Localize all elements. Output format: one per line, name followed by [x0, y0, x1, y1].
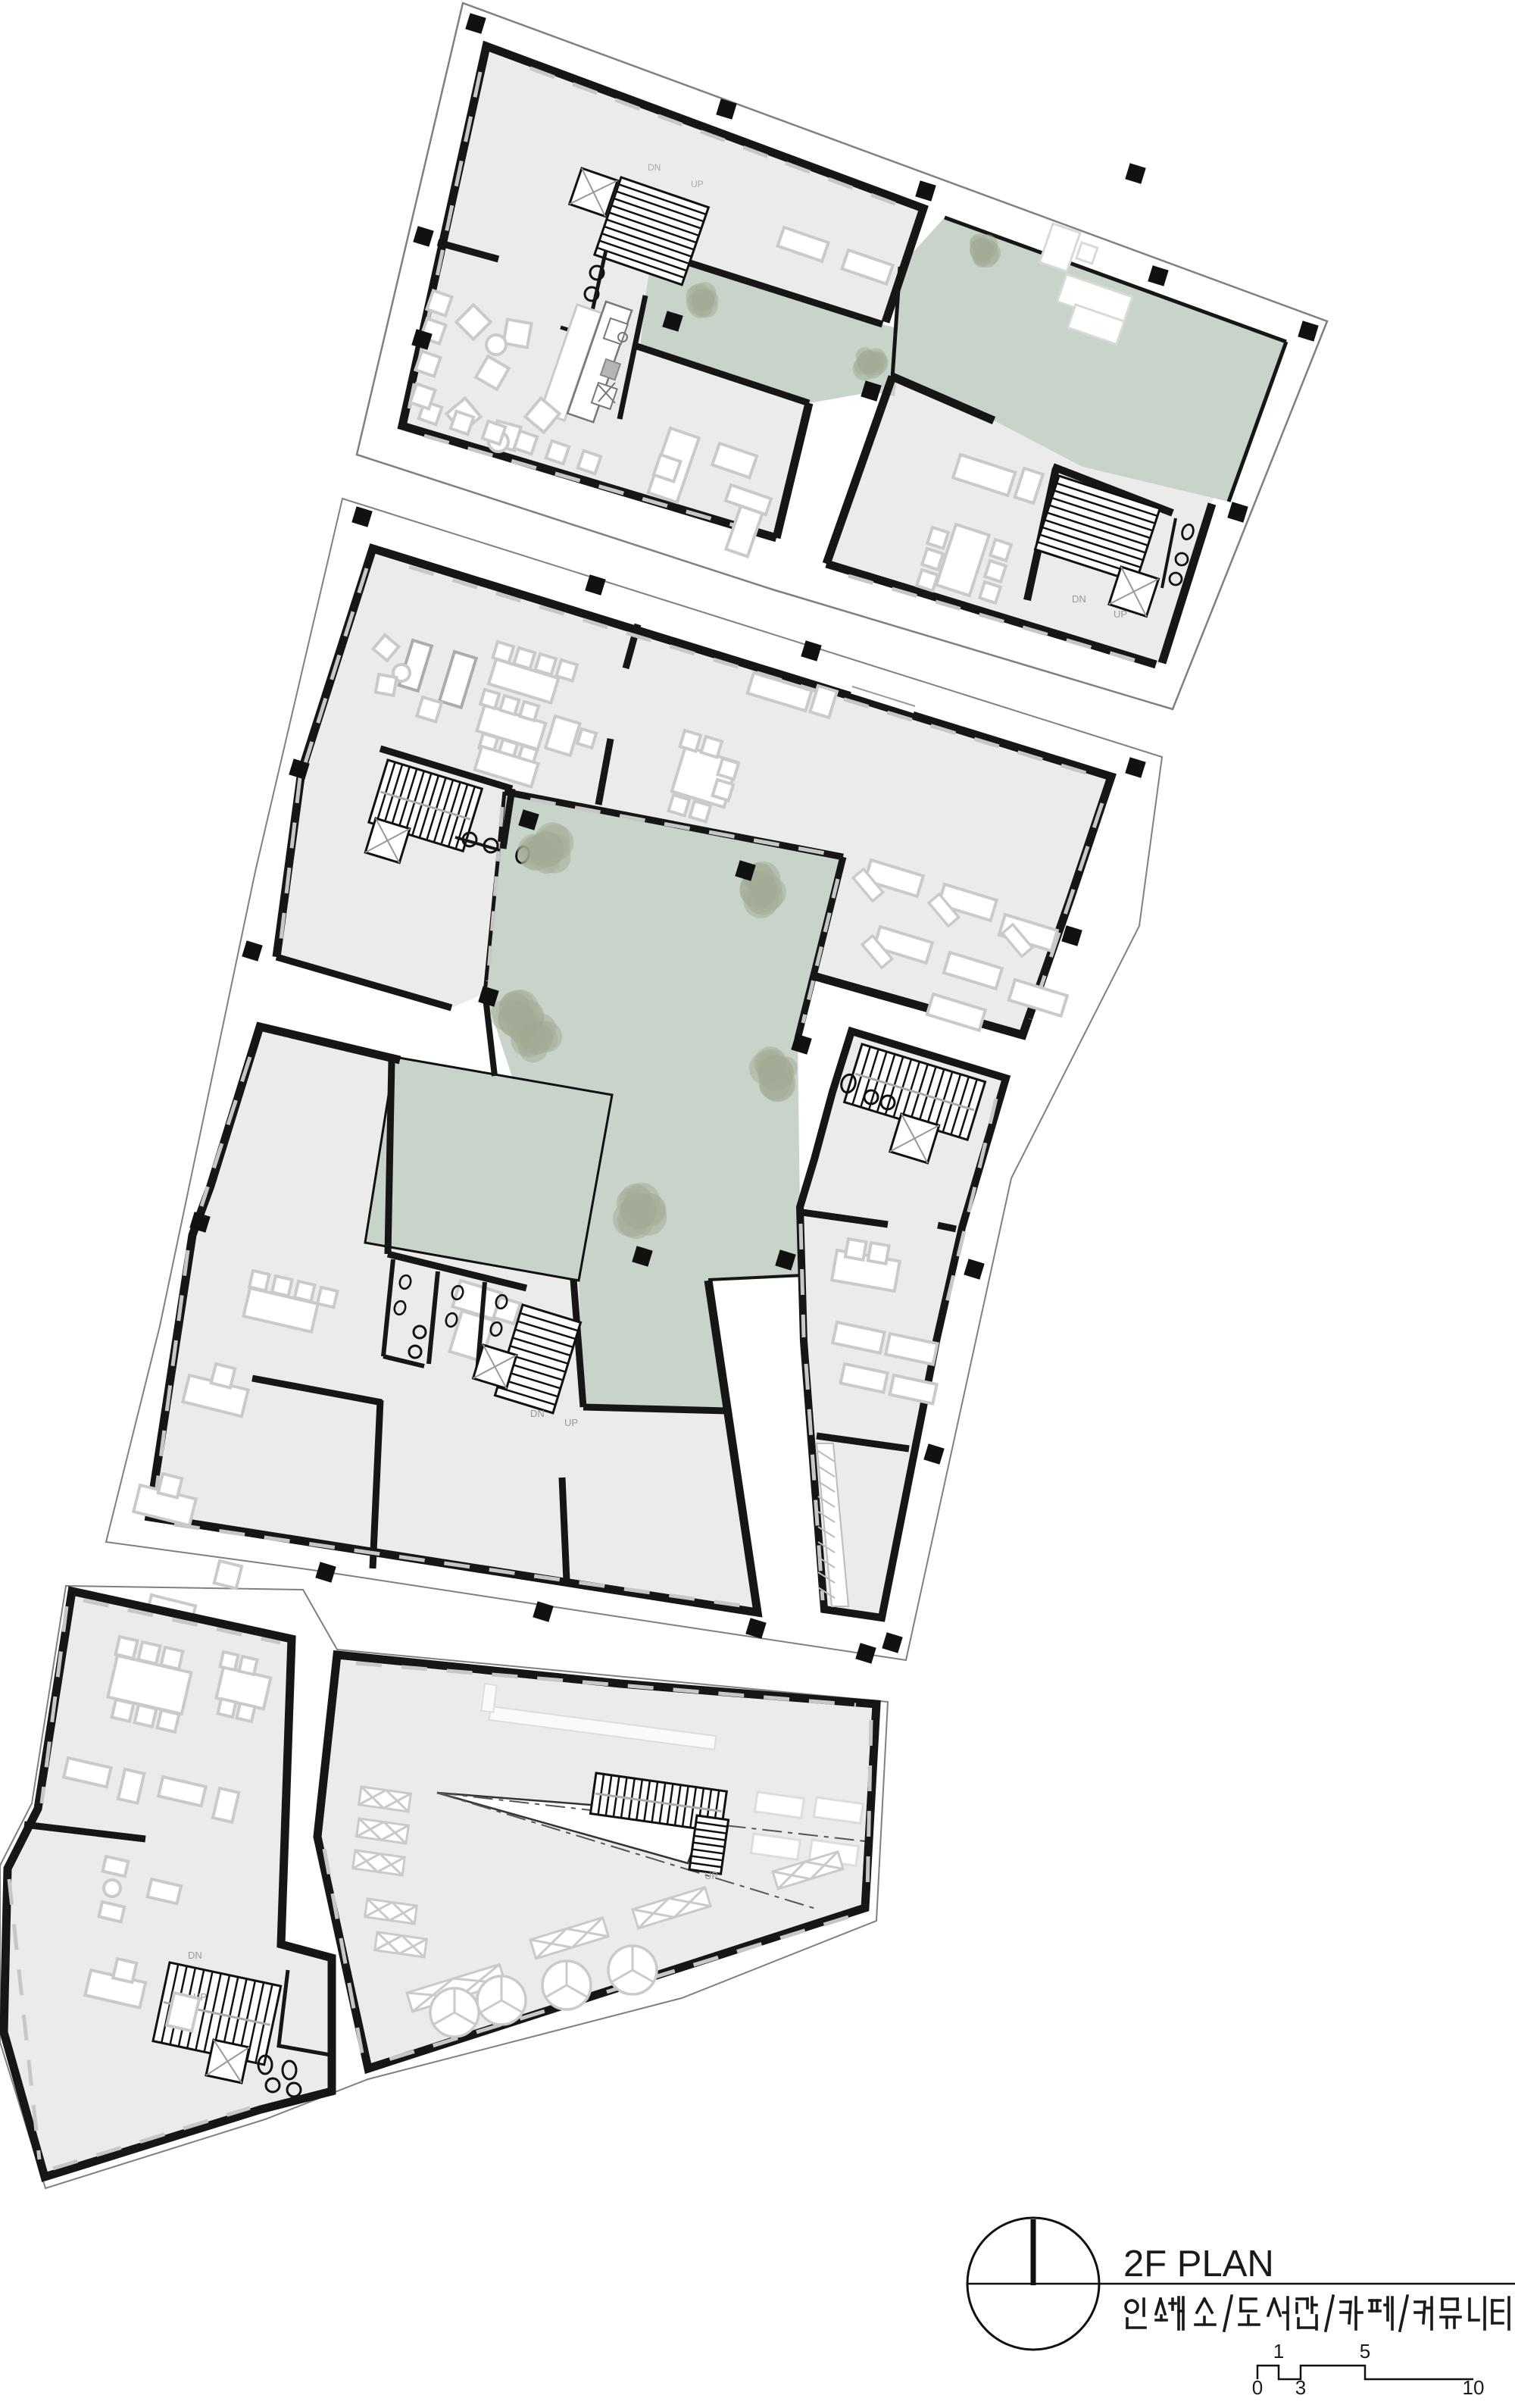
svg-text:10: 10	[1463, 2376, 1485, 2399]
svg-text:UP: UP	[564, 1417, 578, 1428]
svg-text:2F PLAN: 2F PLAN	[1123, 2244, 1274, 2284]
svg-text:DN: DN	[188, 1950, 202, 1961]
svg-text:DN: DN	[1072, 593, 1086, 605]
svg-text:UP: UP	[704, 1870, 718, 1881]
svg-text:UP: UP	[1114, 608, 1127, 620]
svg-text:UP: UP	[691, 179, 704, 189]
svg-text:0: 0	[1252, 2376, 1263, 2399]
svg-text:3: 3	[1295, 2376, 1306, 2399]
svg-text:DN: DN	[648, 162, 661, 173]
svg-text:DN: DN	[530, 1408, 545, 1419]
svg-text:5: 5	[1360, 2340, 1370, 2363]
svg-text:1: 1	[1273, 2340, 1284, 2363]
